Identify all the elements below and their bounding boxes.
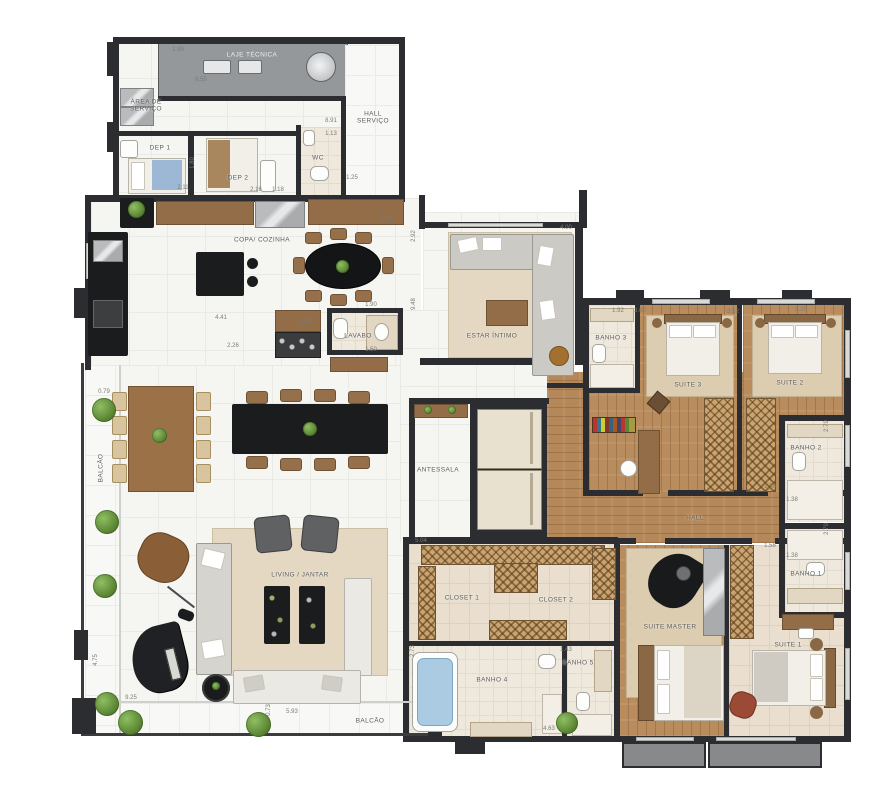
pillow	[201, 638, 226, 660]
pillar	[72, 698, 96, 734]
dining-chair	[305, 232, 322, 244]
dim-label: 4.41	[215, 315, 227, 321]
elevator-door-line-2	[530, 473, 533, 525]
armchair	[253, 514, 293, 554]
wall	[782, 290, 812, 298]
window	[757, 299, 815, 304]
rear-balcony-slab	[708, 742, 822, 768]
room-label-wc: WC	[312, 154, 324, 161]
dining-chair	[280, 458, 302, 471]
room-label-lavabo: LAVABO	[344, 332, 371, 339]
balcony-bottom-floor	[119, 703, 439, 733]
dim-label: 8.63	[381, 217, 393, 223]
wall	[399, 37, 405, 202]
centerpiece	[336, 260, 349, 273]
dining-chair	[112, 440, 127, 459]
dressing-counter	[703, 548, 725, 636]
dining-chair	[305, 290, 322, 302]
nightstand	[722, 318, 732, 328]
piano-stool	[676, 566, 691, 581]
console	[414, 404, 468, 418]
armchair	[300, 514, 340, 554]
dim-label: 2.92	[411, 230, 417, 242]
dim-label: 3.52	[727, 309, 739, 315]
wall	[398, 308, 403, 355]
room-label-hall-servico: HALL SERVIÇO	[355, 111, 391, 126]
dim-label: 4.75	[93, 654, 99, 666]
room-label-living-jantar: LIVING / JANTAR	[271, 571, 329, 578]
plant	[92, 398, 116, 422]
dining-chair	[246, 456, 268, 469]
dim-label: 5.93	[286, 709, 298, 715]
plant	[448, 406, 456, 414]
wall	[107, 42, 115, 76]
desk-chair	[798, 628, 814, 639]
nightstand	[810, 638, 823, 651]
room-label-closet2: CLOSET 2	[539, 596, 574, 603]
wardrobe	[704, 398, 734, 492]
window	[845, 648, 850, 700]
dining-chair	[330, 294, 347, 306]
pillow	[321, 675, 343, 693]
dim-label: 2.26	[227, 343, 239, 349]
plant	[212, 682, 220, 690]
water-tank	[306, 52, 336, 82]
dim-label: 2.89	[300, 319, 312, 325]
dim-label: 1.90	[365, 302, 377, 308]
vanity	[787, 424, 843, 438]
dim-label: 4.63	[543, 726, 555, 732]
room-label-copa-cozinha: COPA/ COZINHA	[234, 236, 290, 243]
balcony-railing	[81, 363, 84, 735]
kitchen-island	[196, 252, 244, 296]
room-label-estar-intimo: ESTAR ÍNTIMO	[467, 332, 518, 339]
nightstand	[652, 318, 662, 328]
nightstand	[826, 318, 836, 328]
toilet	[310, 166, 329, 181]
shower	[590, 364, 634, 388]
room-label-suite2: SUITE 2	[776, 379, 803, 386]
room-label-banho3: BANHO 3	[595, 334, 626, 341]
wall	[403, 538, 409, 742]
coffee-table	[486, 300, 528, 326]
dim-label: 9.25	[125, 695, 137, 701]
dining-chair	[355, 232, 372, 244]
pillow	[810, 678, 823, 701]
vanity	[594, 650, 612, 692]
bookshelf	[592, 417, 636, 433]
dim-label: 8.91	[325, 118, 337, 124]
wall	[614, 538, 636, 544]
wall	[296, 125, 301, 195]
dim-label: 2.79	[824, 523, 830, 535]
pillar	[74, 288, 88, 318]
toilet	[592, 344, 606, 363]
nightstand	[810, 706, 823, 719]
dim-label: 3.60	[634, 308, 646, 314]
dining-chair	[330, 228, 347, 240]
wardrobe	[418, 566, 436, 640]
plant	[95, 692, 119, 716]
room-label-hall: HALL	[686, 514, 704, 521]
stool	[247, 276, 258, 287]
pillow	[810, 654, 823, 677]
dining-chair	[280, 389, 302, 402]
wall	[635, 305, 640, 393]
dining-chair	[293, 257, 305, 274]
wall	[455, 742, 485, 754]
pillar	[74, 630, 88, 660]
room-label-dep1: DEP 1	[150, 144, 171, 151]
wall	[779, 415, 845, 421]
pillow	[771, 325, 794, 338]
dining-chair	[314, 458, 336, 471]
toilet	[792, 452, 806, 471]
dim-label: 0.73	[266, 704, 272, 716]
dining-chair	[196, 440, 211, 459]
sink	[303, 130, 315, 146]
dim-label: 9.48	[411, 298, 417, 310]
plant	[93, 574, 117, 598]
room-label-closet1: CLOSET 1	[445, 594, 480, 601]
room-label-suite1: SUITE 1	[774, 641, 801, 648]
room-label-suite3: SUITE 3	[674, 381, 701, 388]
room-label-banho4: BANHO 4	[476, 676, 507, 683]
bathtub-water	[417, 658, 453, 726]
toilet	[538, 654, 556, 669]
plant	[424, 406, 432, 414]
dim-label: 6.55	[195, 77, 207, 83]
elevator-door-line-1	[530, 412, 533, 464]
dining-chair	[196, 464, 211, 483]
wall	[327, 308, 332, 353]
plant	[95, 510, 119, 534]
wall	[119, 131, 199, 136]
shelf	[120, 140, 138, 158]
nightstand	[755, 318, 765, 328]
sink-kitchen	[93, 300, 123, 328]
wall	[403, 537, 618, 544]
dim-label: 1.58	[764, 484, 776, 490]
dining-chair	[382, 257, 394, 274]
dining-chair	[355, 290, 372, 302]
floor-plan: LAJE TÉCNICA HALL SERVIÇO ÁREA DE SERVIÇ…	[0, 0, 871, 800]
window	[845, 425, 850, 467]
window	[845, 552, 850, 590]
wardrobe	[746, 398, 776, 492]
wall	[700, 290, 730, 298]
shower	[572, 714, 612, 736]
wall	[737, 305, 742, 495]
room-label-dep2: DEP 2	[228, 174, 249, 181]
centerpiece	[152, 428, 167, 443]
pillow	[693, 325, 716, 338]
dim-label: 1.99	[172, 47, 184, 53]
wall	[420, 358, 545, 365]
dining-chair	[348, 456, 370, 469]
room-label-laje-tecnica: LAJE TÉCNICA	[227, 51, 278, 58]
dining-chair	[348, 391, 370, 404]
wall	[583, 388, 639, 393]
wall	[575, 222, 583, 365]
dining-chair	[196, 392, 211, 411]
plant	[128, 201, 145, 218]
wardrobe	[489, 620, 567, 640]
dim-label: 1.43	[560, 647, 572, 653]
pillow	[795, 325, 818, 338]
pillow	[657, 650, 670, 680]
cooktop	[93, 240, 123, 262]
room-label-balcao-left: BALCÃO	[97, 454, 104, 483]
toilet	[576, 692, 590, 711]
bed-blanket	[684, 646, 721, 718]
window	[716, 737, 796, 741]
wall	[779, 415, 785, 523]
plant	[118, 710, 143, 735]
vanity	[787, 588, 843, 604]
window	[448, 223, 543, 227]
machine	[238, 60, 262, 74]
wall	[194, 131, 296, 136]
room-label-banho1: BANHO 1	[790, 570, 821, 577]
dining-chair	[314, 389, 336, 402]
dim-label: 2.79	[824, 420, 830, 432]
pillow	[657, 684, 670, 714]
wardrobe	[494, 563, 538, 593]
stool	[247, 258, 258, 269]
dim-label: 2.16	[250, 187, 262, 193]
dim-label: 1.38	[786, 553, 798, 559]
room-label-banho2: BANHO 2	[790, 444, 821, 451]
wall	[341, 96, 346, 196]
wall	[113, 37, 405, 44]
wall	[779, 523, 845, 529]
sink	[374, 323, 389, 341]
dim-label: 2.73	[410, 645, 416, 657]
plant	[556, 712, 578, 734]
window	[652, 299, 710, 304]
wall	[409, 641, 614, 646]
wall	[616, 290, 644, 298]
dining-chair	[196, 416, 211, 435]
dim-label: 1.18	[272, 187, 284, 193]
bed-blanket	[754, 652, 788, 702]
dining-chair	[246, 391, 268, 404]
room-label-suite-master: SUITE MASTER	[644, 623, 697, 630]
pillow	[539, 299, 557, 321]
dim-label: 1.25	[346, 175, 358, 181]
wardrobe	[421, 545, 605, 565]
dining-chair	[112, 416, 127, 435]
dim-label: 4.00	[560, 225, 572, 231]
dim-label: 1.58	[764, 543, 776, 549]
room-label-balcao-bottom: BALCÃO	[356, 717, 385, 724]
vanity	[470, 722, 532, 737]
wall	[665, 538, 752, 544]
dim-label: 1.50	[365, 347, 377, 353]
wall	[107, 122, 115, 152]
machine	[203, 60, 231, 74]
dim-label: 5.04	[415, 538, 427, 544]
desk-chair	[620, 460, 637, 477]
pillow	[482, 237, 502, 251]
pillow	[669, 325, 692, 338]
wardrobe	[592, 548, 616, 600]
window	[636, 737, 694, 741]
wall	[158, 96, 346, 101]
dim-label: 1.38	[786, 497, 798, 503]
desk	[638, 430, 660, 494]
room-label-banho5: BANHO 5	[562, 659, 593, 666]
room-label-antessala: ANTESSALA	[417, 466, 459, 473]
pillow	[131, 162, 145, 190]
display-cabinet	[299, 586, 325, 644]
wall	[583, 490, 643, 496]
dim-label: 0.79	[98, 389, 110, 395]
wall	[409, 398, 415, 538]
dim-label: 1.13	[325, 131, 337, 137]
dim-label: 1.92	[612, 308, 624, 314]
pouf	[549, 346, 569, 366]
fridge	[255, 201, 305, 228]
dim-label: 3.20	[795, 307, 807, 313]
rear-balcony-slab	[622, 742, 706, 768]
wardrobe	[730, 545, 754, 639]
bar-cabinet	[275, 310, 321, 332]
upper-cabinet	[156, 201, 254, 225]
sofa	[344, 578, 372, 676]
wine-rack	[275, 332, 321, 358]
dim-label: 1.80	[190, 157, 196, 169]
dining-chair	[112, 464, 127, 483]
wall	[583, 298, 589, 492]
centerpiece	[303, 422, 317, 436]
display-cabinet	[264, 586, 290, 644]
wall	[327, 308, 403, 313]
room-label-area-servico: ÁREA DE SERVIÇO	[126, 99, 166, 114]
dim-label: 2.11	[177, 185, 188, 191]
window	[845, 330, 850, 378]
console	[330, 357, 388, 372]
